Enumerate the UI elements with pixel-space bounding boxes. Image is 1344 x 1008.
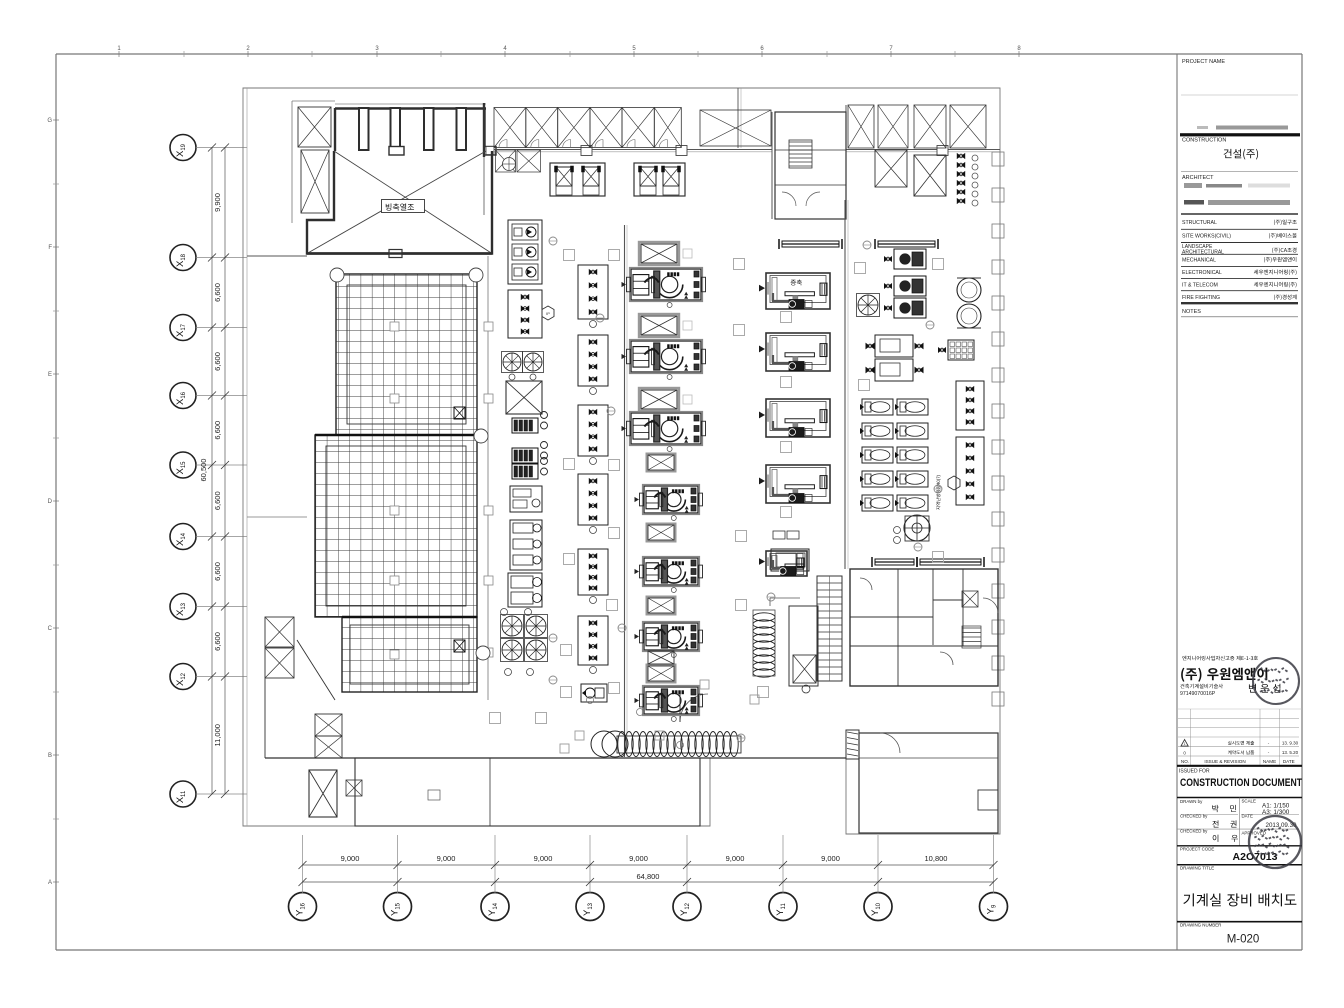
- svg-text:E: E: [48, 372, 52, 378]
- svg-text:G: G: [47, 118, 52, 124]
- svg-text:F: F: [48, 245, 52, 251]
- svg-text:CONSTRUCTION: CONSTRUCTION: [1182, 138, 1226, 144]
- svg-text:IT & TELECOM: IT & TELECOM: [1182, 282, 1218, 288]
- svg-text:FIRE FIGHTING: FIRE FIGHTING: [1182, 295, 1220, 301]
- svg-text:MECHANICAL: MECHANICAL: [1182, 257, 1216, 263]
- svg-text:SITE WORKS(CIVIL): SITE WORKS(CIVIL): [1182, 234, 1231, 240]
- svg-text:64,800: 64,800: [637, 872, 660, 881]
- svg-text:B: B: [48, 753, 52, 759]
- svg-text:9,000: 9,000: [341, 854, 360, 863]
- svg-text:13. 5.20: 13. 5.20: [1282, 750, 1299, 755]
- svg-text:9,000: 9,000: [437, 854, 456, 863]
- svg-text:60,500: 60,500: [199, 459, 208, 482]
- svg-text:9,000: 9,000: [821, 854, 840, 863]
- svg-text:6,600: 6,600: [213, 352, 222, 371]
- svg-text:1: 1: [1184, 742, 1186, 746]
- svg-text:DATE: DATE: [1242, 813, 1253, 818]
- svg-text:A: A: [48, 880, 52, 886]
- svg-text:PROJECT NAME: PROJECT NAME: [1182, 59, 1225, 65]
- svg-text:10,800: 10,800: [925, 854, 948, 863]
- svg-text:PROJECT CODE: PROJECT CODE: [1180, 847, 1214, 852]
- svg-text:9,000: 9,000: [726, 854, 745, 863]
- svg-text:6,600: 6,600: [213, 632, 222, 651]
- svg-text:NOTES: NOTES: [1182, 309, 1201, 315]
- svg-text:6,600: 6,600: [213, 421, 222, 440]
- svg-text:11,000: 11,000: [213, 724, 222, 746]
- svg-text:13. 9.30: 13. 9.30: [1282, 741, 1299, 746]
- svg-text:A3: 1/300: A3: 1/300: [1262, 809, 1290, 816]
- svg-text:NO.: NO.: [1181, 759, 1189, 764]
- svg-text:CHECKED by: CHECKED by: [1180, 828, 1208, 833]
- svg-text:DATE: DATE: [1283, 759, 1295, 764]
- svg-text:C: C: [48, 626, 53, 632]
- svg-text:ISSUE & REVISION: ISSUE & REVISION: [1204, 759, 1245, 764]
- svg-text:6,600: 6,600: [213, 562, 222, 581]
- svg-text:CHECKED by: CHECKED by: [1180, 814, 1208, 819]
- svg-text:9,000: 9,000: [629, 854, 648, 863]
- svg-text:9,900: 9,900: [213, 193, 222, 212]
- svg-text:9,000: 9,000: [534, 854, 553, 863]
- svg-text:STRUCTURAL: STRUCTURAL: [1182, 220, 1217, 226]
- svg-text:DRAWING TITLE: DRAWING TITLE: [1180, 866, 1214, 871]
- svg-text:6,600: 6,600: [213, 491, 222, 510]
- svg-text:DRAWN by: DRAWN by: [1180, 799, 1203, 804]
- svg-text:SCALE: SCALE: [1242, 799, 1256, 804]
- svg-text:IP: IP: [546, 311, 550, 316]
- svg-text:ELECTRONICAL: ELECTRONICAL: [1182, 270, 1222, 276]
- svg-text:DRAWING NUMBER: DRAWING NUMBER: [1180, 922, 1221, 927]
- svg-text:D: D: [48, 499, 53, 505]
- svg-text:NAME: NAME: [1263, 759, 1276, 764]
- svg-text:ARCHITECT: ARCHITECT: [1182, 175, 1214, 181]
- svg-text:ISSUED FOR: ISSUED FOR: [1179, 769, 1210, 775]
- svg-text:97149070016P: 97149070016P: [1180, 691, 1216, 697]
- svg-text:6,600: 6,600: [213, 283, 222, 302]
- svg-text:CONSTRUCTION DOCUMENT: CONSTRUCTION DOCUMENT: [1180, 777, 1302, 789]
- svg-text:M-020: M-020: [1227, 933, 1260, 945]
